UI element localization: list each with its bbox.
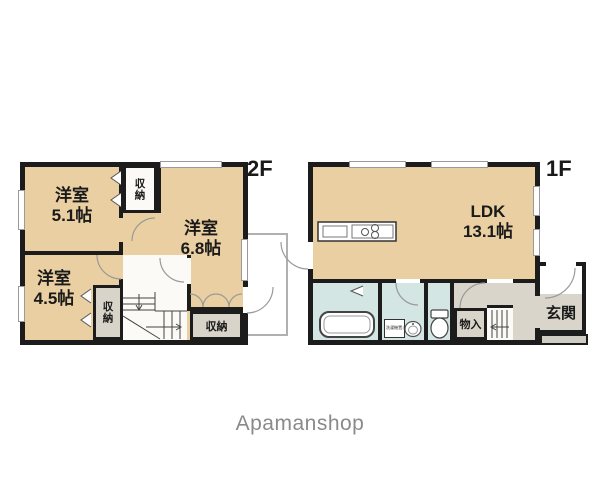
1f-door-gap-hall [487,279,513,283]
1f-window-right-upper [533,186,540,216]
1f-toilet-room [428,283,450,340]
entrance-genkan: 玄関 [540,294,582,330]
floorplan-image: 2F 収納 収納 収納 洋室5.1帖 洋室6.8帖 洋室4.5帖 [0,0,600,480]
1f-ldk-label: LDK13.1帖 [448,202,528,243]
1f-window-top-left [349,161,406,168]
1f-door-gap-laundry [396,279,420,283]
1f-window-top-right [431,161,488,168]
1f-storage-closet: 物入 [454,308,487,340]
1f-window-right-lower [533,229,540,256]
1f-bathroom [313,283,378,340]
1f-door-gap-backdoor [306,242,313,269]
1f-floor-label: 1F [546,156,572,182]
hall-genkan-opening [535,296,540,328]
1f-wall-stairs-top [487,305,513,308]
1f-stairs [487,308,513,340]
washing-machine-icon: 洗濯機置き場 [384,319,405,338]
brand-logo-text: Apamanshop [0,412,600,436]
entrance-step [540,334,588,345]
front-door-gap [546,262,576,266]
floor-1f-plan: 1F 物入 洗濯機置き場 LDK13.1帖 玄 [0,0,600,480]
